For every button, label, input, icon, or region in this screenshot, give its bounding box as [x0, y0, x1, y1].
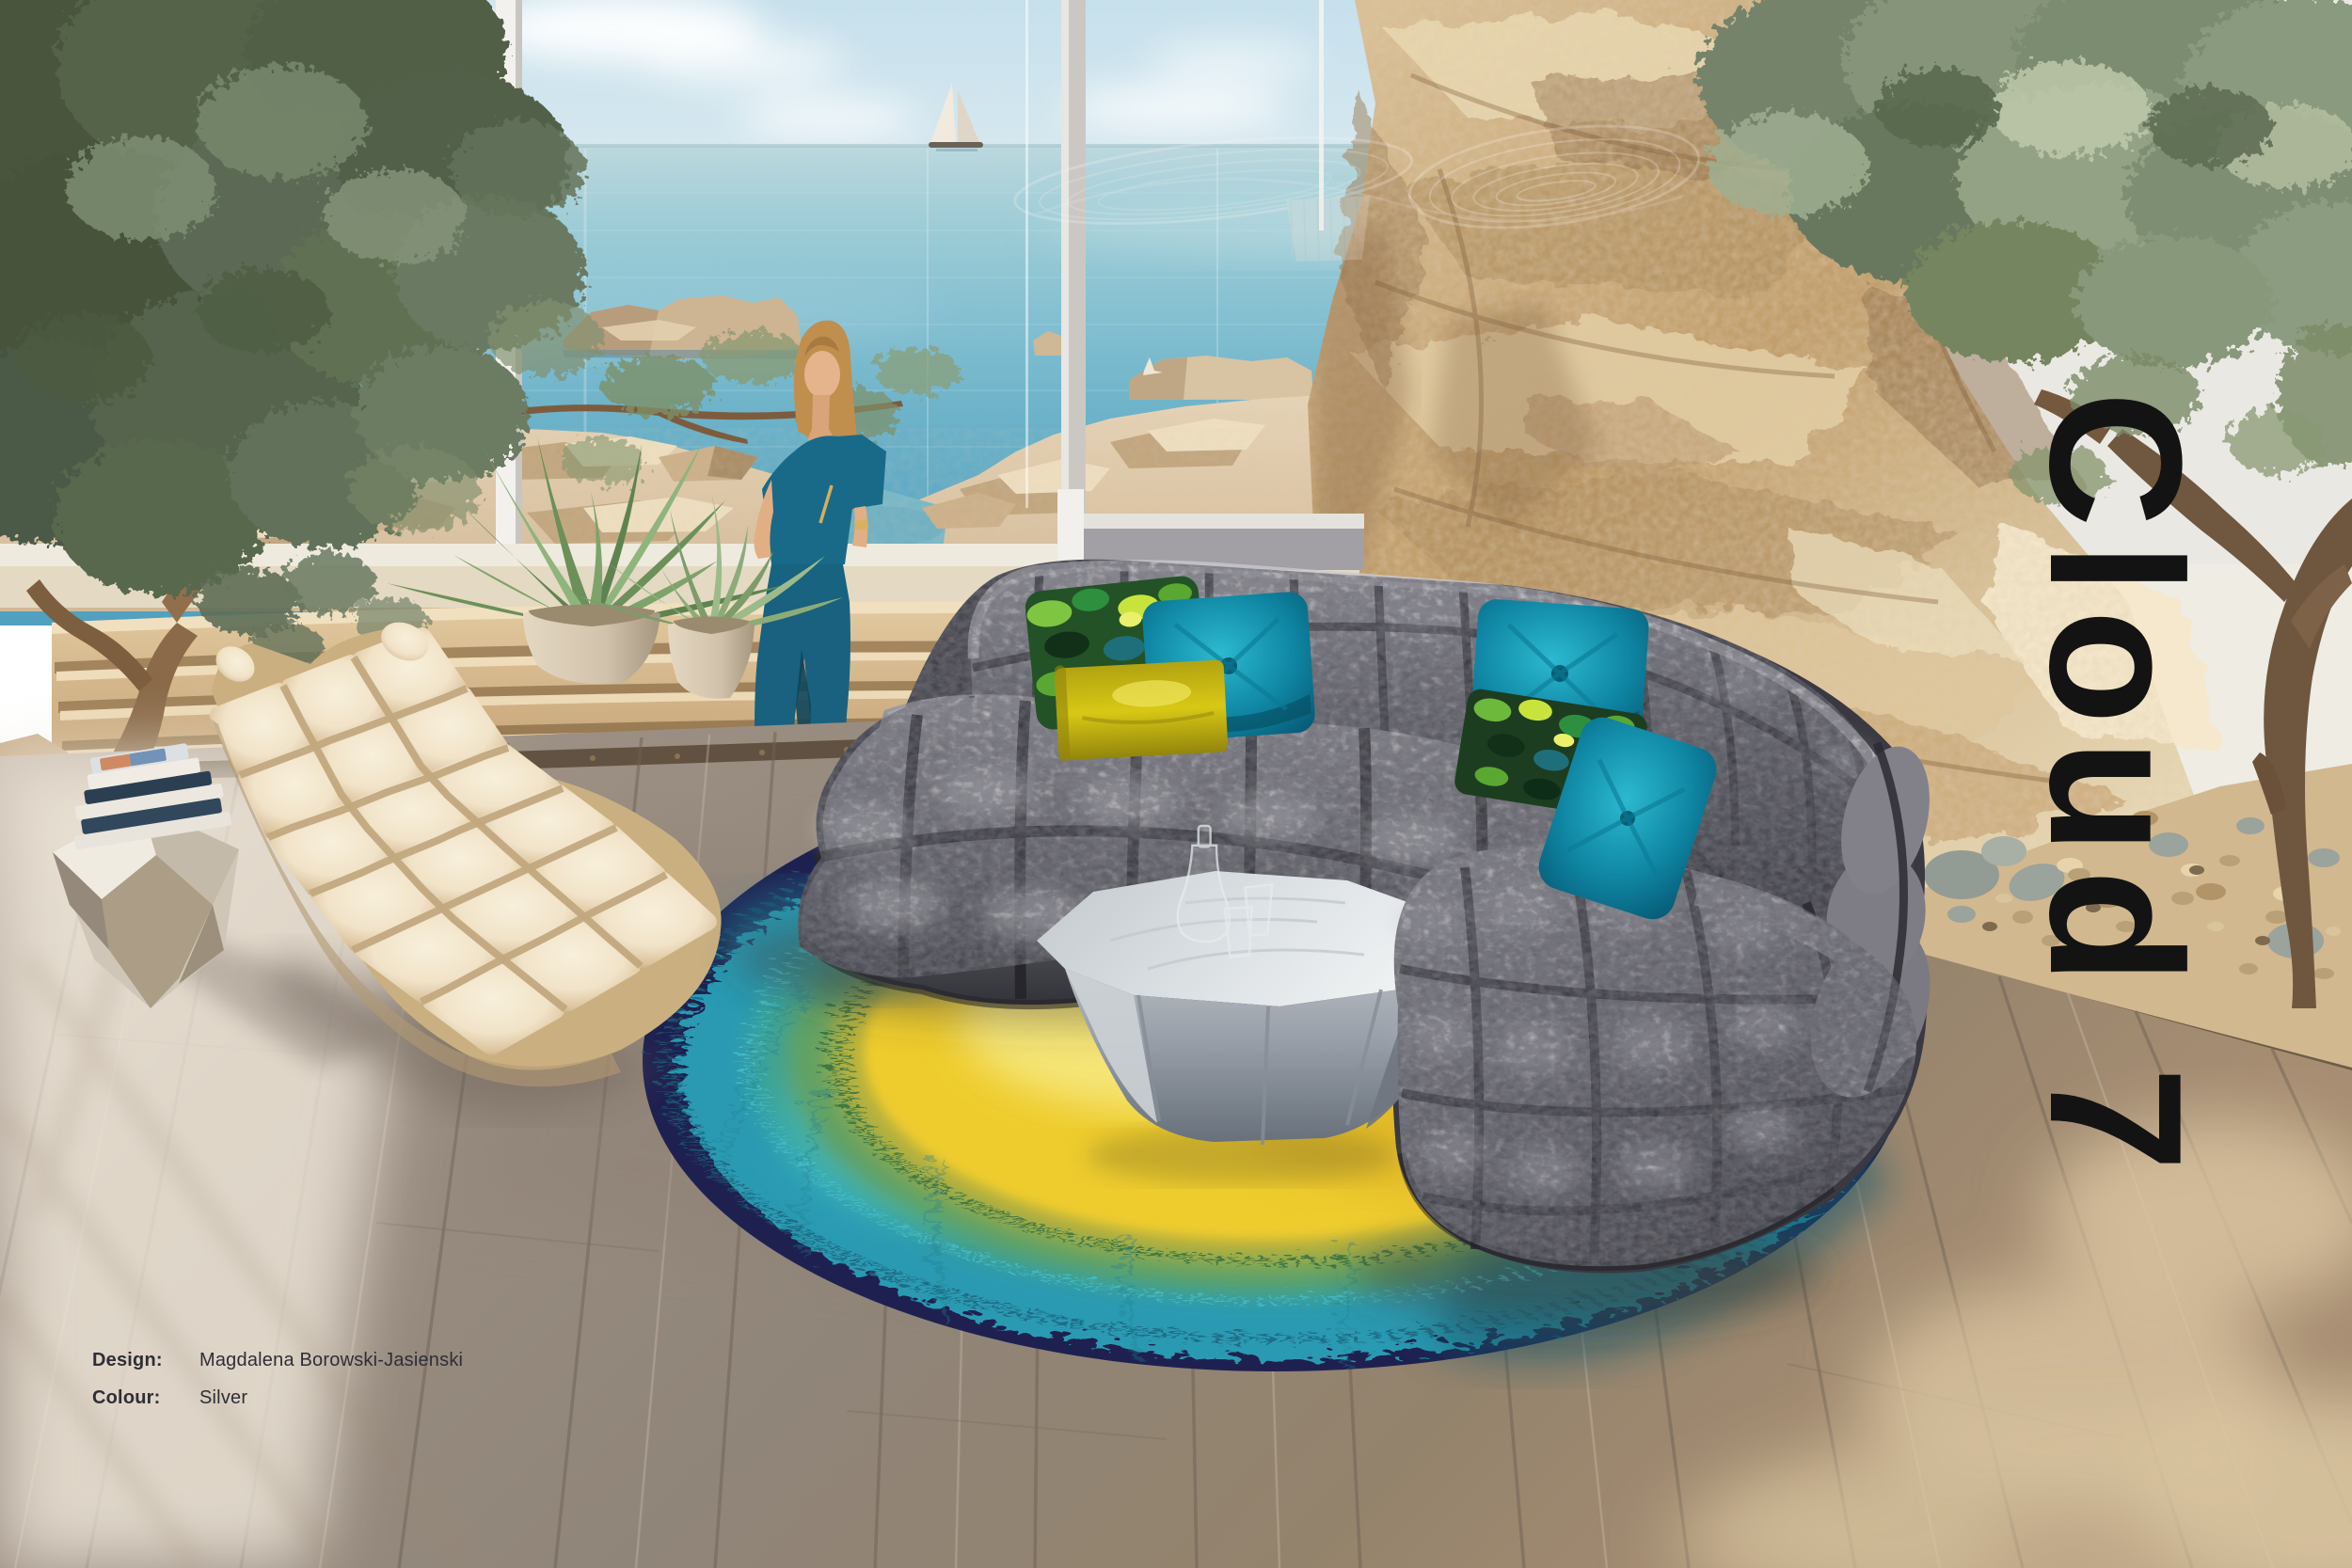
svg-text:Silver: Silver: [199, 1387, 247, 1408]
svg-text:Colour:: Colour:: [92, 1387, 161, 1408]
svg-text:Magdalena Borowski-Jasienski: Magdalena Borowski-Jasienski: [199, 1350, 463, 1370]
svg-text:Cloud 7: Cloud 7: [2010, 391, 2220, 1186]
svg-text:Design:: Design:: [92, 1350, 163, 1370]
